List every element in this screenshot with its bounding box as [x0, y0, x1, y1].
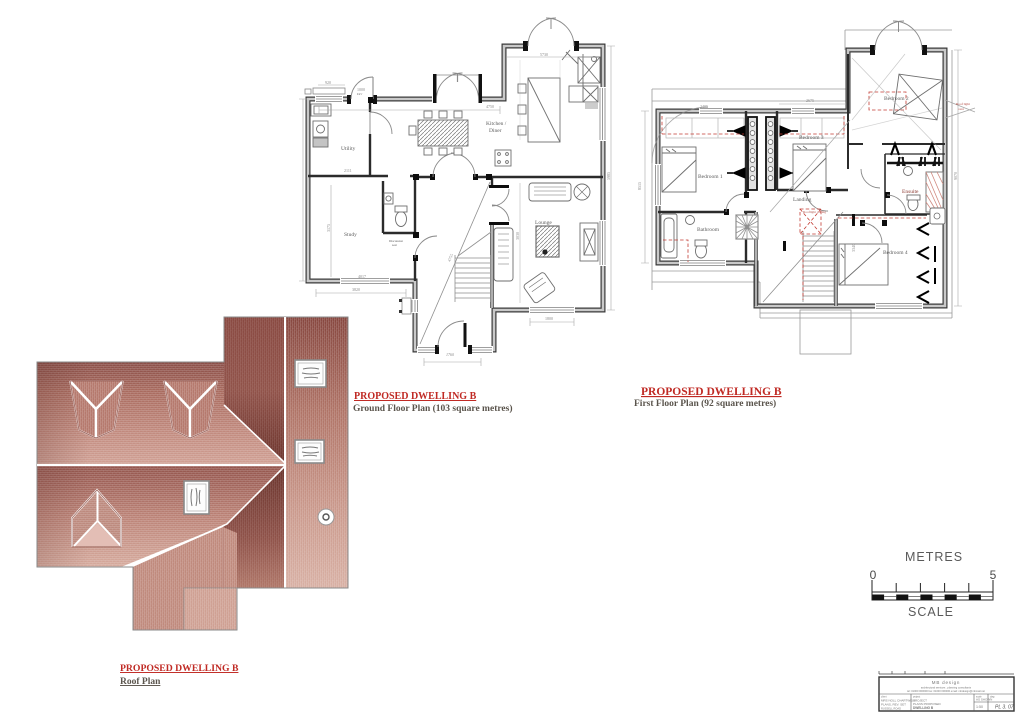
- svg-text:5730: 5730: [540, 52, 548, 57]
- svg-text:architectural services . plann: architectural services . planning consul…: [921, 686, 972, 690]
- svg-text:PROPOSED DWELLING B: PROPOSED DWELLING B: [120, 663, 239, 674]
- svg-text:Dcr: Dcr: [356, 92, 363, 96]
- svg-text:Kitchen /: Kitchen /: [486, 121, 507, 127]
- svg-text:5: 5: [990, 568, 997, 582]
- svg-text:3175: 3175: [326, 224, 331, 232]
- svg-text:1:50: 1:50: [976, 705, 983, 709]
- svg-text:Bedroom 4: Bedroom 4: [883, 250, 908, 256]
- svg-text:seat: seat: [392, 243, 397, 247]
- svg-text:Landing: Landing: [793, 197, 812, 203]
- svg-text:PLANS, REV. SET: PLANS, REV. SET: [881, 703, 906, 707]
- svg-text:PL 3. 07: PL 3. 07: [995, 705, 1014, 711]
- svg-text:Rooflight ceiling: Rooflight ceiling: [803, 210, 826, 214]
- svg-text:Bedroom 2: Bedroom 2: [884, 96, 909, 102]
- svg-text:dwg: dwg: [990, 696, 995, 699]
- svg-text:Ground Floor Plan (103 square: Ground Floor Plan (103 square metres): [353, 403, 512, 414]
- svg-text:2405: 2405: [700, 104, 708, 109]
- svg-text:Ensuite: Ensuite: [902, 189, 919, 195]
- svg-text:tel: 01000 000000 fax: 01000: tel: 01000 000000 fax: 01000 000000 emai…: [907, 689, 985, 693]
- svg-text:2675: 2675: [806, 98, 814, 103]
- svg-text:5985: 5985: [606, 172, 611, 180]
- svg-text:4750: 4750: [486, 104, 494, 109]
- svg-text:METRES: METRES: [905, 550, 963, 564]
- svg-text:3820: 3820: [352, 287, 360, 292]
- svg-text:Lounge: Lounge: [535, 220, 552, 226]
- svg-text:Diner: Diner: [489, 128, 502, 134]
- svg-text:920: 920: [325, 80, 331, 85]
- svg-text:over: over: [958, 107, 965, 111]
- svg-text:1760: 1760: [446, 352, 454, 357]
- svg-text:Roof Plan: Roof Plan: [120, 677, 161, 687]
- svg-text:Bedroom 1: Bedroom 1: [698, 174, 723, 180]
- svg-text:MB design: MB design: [932, 680, 960, 685]
- svg-text:3340: 3340: [851, 244, 856, 252]
- svg-text:First Floor Plan (92 square me: First Floor Plan (92 square metres): [634, 398, 776, 409]
- svg-text:8515: 8515: [637, 182, 642, 190]
- svg-text:9070: 9070: [953, 172, 958, 180]
- svg-text:RUSSELL ROAD: RUSSELL ROAD: [881, 707, 901, 711]
- svg-text:3030: 3030: [515, 232, 520, 240]
- svg-text:PROPOSED DWELLING B: PROPOSED DWELLING B: [641, 386, 782, 398]
- svg-text:Bathroom: Bathroom: [697, 227, 720, 233]
- svg-text:SCALE: SCALE: [908, 605, 954, 619]
- svg-text:DWELLING B: DWELLING B: [913, 706, 934, 710]
- svg-text:4017: 4017: [358, 274, 366, 279]
- svg-text:2111: 2111: [344, 168, 352, 173]
- svg-text:Roof light: Roof light: [956, 102, 970, 106]
- svg-text:Bedroom 3: Bedroom 3: [799, 135, 824, 141]
- svg-text:0: 0: [870, 568, 877, 582]
- svg-text:1800: 1800: [545, 316, 553, 321]
- svg-text:Study: Study: [344, 232, 357, 238]
- svg-text:PROPOSED DWELLING B: PROPOSED DWELLING B: [354, 391, 477, 402]
- svg-text:Utility: Utility: [341, 146, 356, 152]
